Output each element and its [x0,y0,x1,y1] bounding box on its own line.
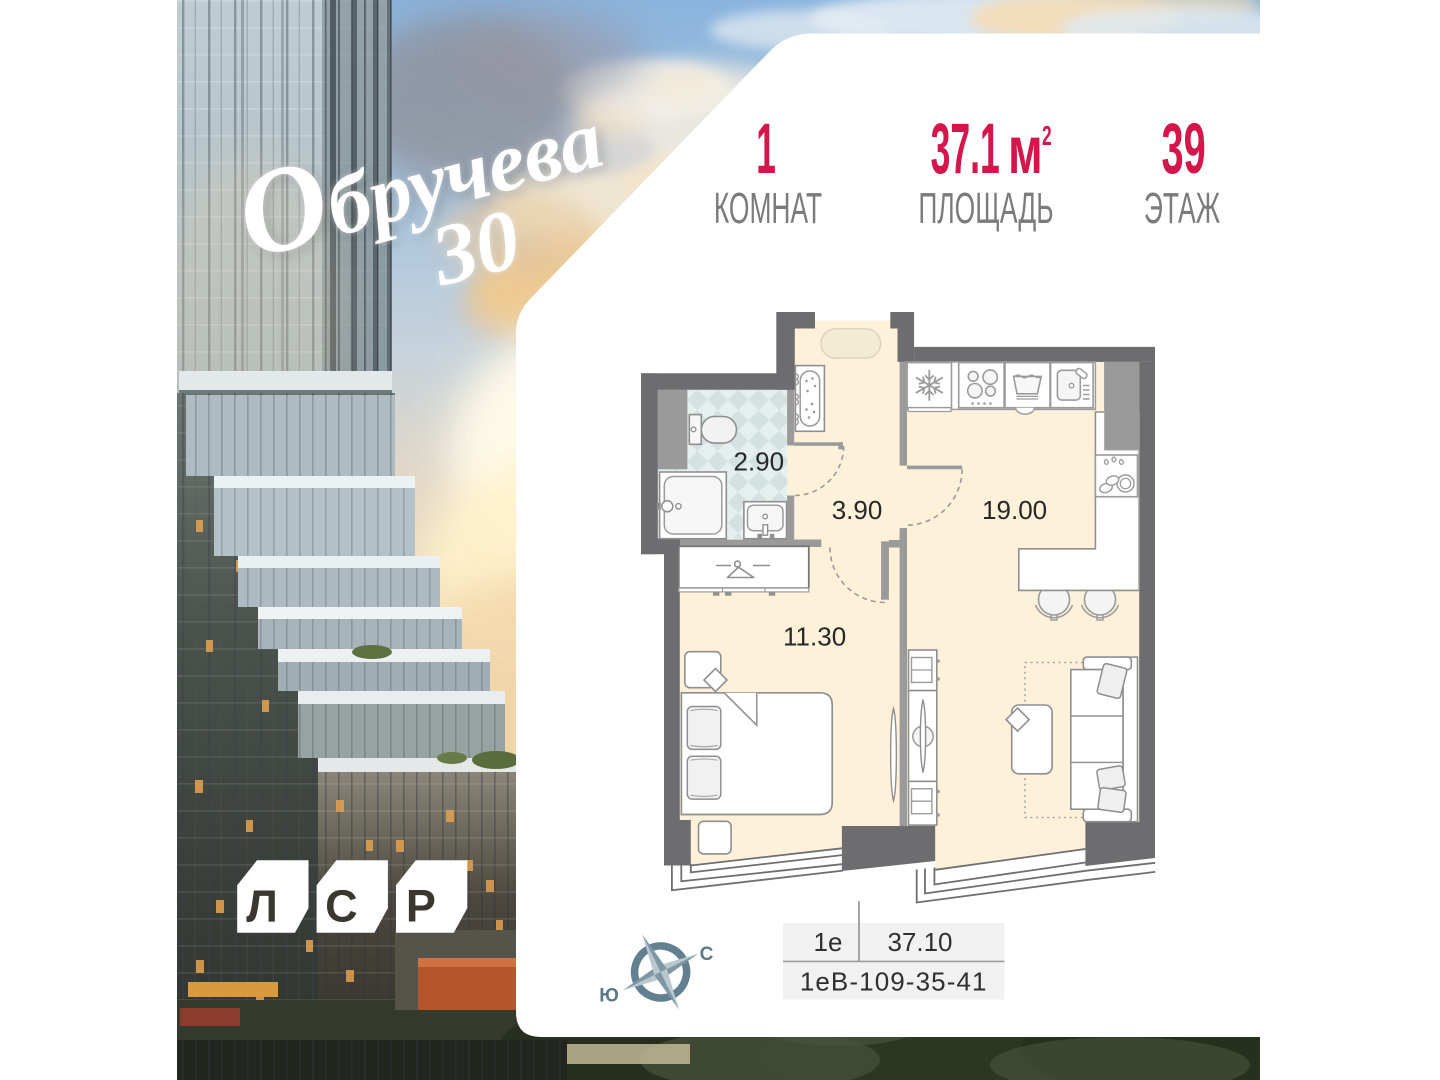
svg-text:37.1: 37.1 [931,108,1000,188]
svg-text:2.90: 2.90 [733,447,784,477]
svg-text:м: м [1008,114,1043,188]
svg-text:Ю: Ю [599,986,619,1007]
svg-text:С: С [325,880,358,931]
svg-text:Л: Л [246,880,278,931]
svg-text:2: 2 [1042,120,1052,151]
svg-text:3.90: 3.90 [832,495,883,525]
svg-text:1еВ-109-35-41: 1еВ-109-35-41 [800,967,988,997]
svg-text:КОМНАТ: КОМНАТ [714,183,822,233]
svg-text:С: С [700,944,714,965]
svg-text:ЭТАЖ: ЭТАЖ [1144,183,1220,233]
svg-text:Р: Р [406,880,436,931]
svg-text:19.00: 19.00 [982,495,1047,525]
svg-text:1: 1 [756,108,776,188]
svg-text:39: 39 [1161,110,1205,189]
svg-text:37.10: 37.10 [887,927,952,957]
svg-text:1е: 1е [814,927,843,957]
svg-text:11.30: 11.30 [783,622,846,652]
svg-text:ПЛОЩАДЬ: ПЛОЩАДЬ [918,183,1053,233]
